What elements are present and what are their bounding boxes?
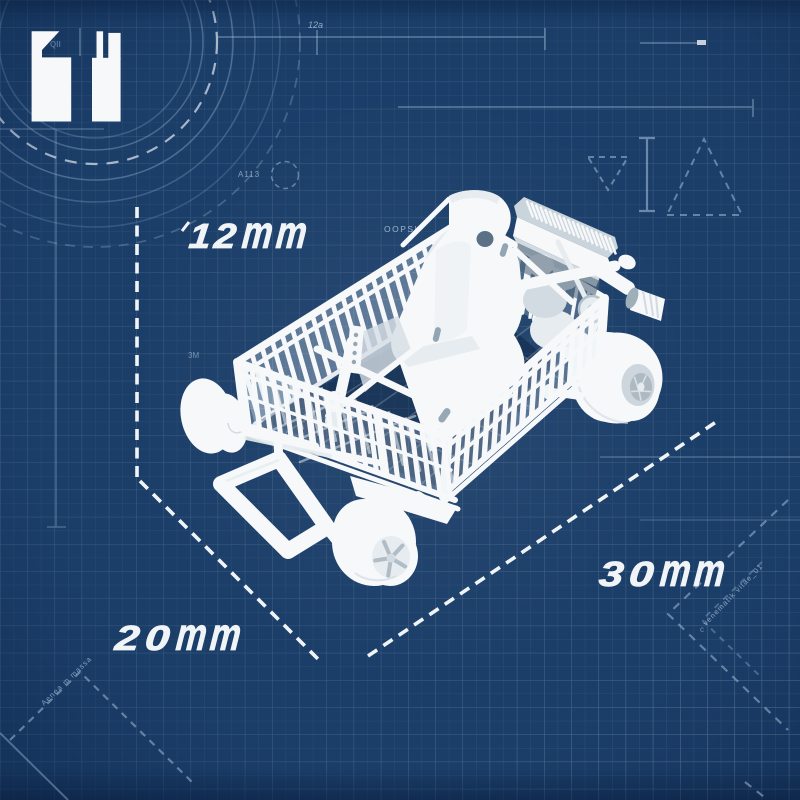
svg-text:mm: mm [658,544,731,596]
svg-text:30: 30 [597,555,661,594]
svg-text:mm: mm [174,608,247,660]
svg-text:20: 20 [112,619,177,658]
svg-text:12: 12 [187,216,241,255]
svg-text:mm: mm [240,206,313,258]
